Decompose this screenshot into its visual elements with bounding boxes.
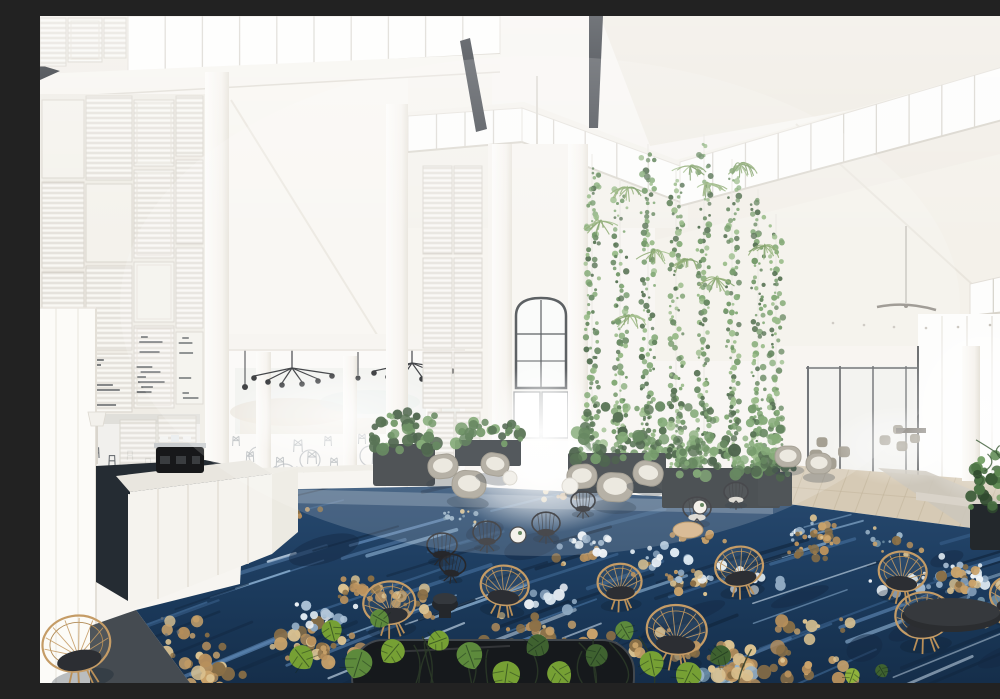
carpet-flower: [818, 522, 826, 530]
carpet-flower: [301, 601, 311, 611]
carpet-flower: [820, 536, 823, 539]
carpet-flower: [320, 653, 327, 660]
carpet-flower: [202, 642, 211, 651]
carpet-flower: [926, 584, 931, 589]
plant-bottom-right: [968, 504, 974, 510]
carpet-flower: [683, 555, 693, 565]
carpet-flower: [205, 633, 210, 638]
carpet-flower: [516, 624, 525, 633]
carpet-flower: [542, 625, 546, 629]
carpet-flower: [678, 569, 684, 575]
carpet-flower: [810, 544, 820, 554]
carpet-flower: [795, 532, 800, 537]
carpet-flower: [675, 576, 682, 583]
carpet-flower: [960, 585, 968, 593]
carpet-flower: [829, 541, 833, 545]
carpet-flower: [295, 602, 299, 606]
plant-bottom-right: [977, 456, 985, 464]
carpet-flower: [338, 595, 342, 599]
top-haze: [40, 16, 1000, 246]
carpet-flower: [892, 536, 901, 545]
carpet-flower: [971, 566, 980, 575]
carpet-flower: [810, 514, 817, 521]
carpet-flower: [667, 575, 673, 581]
carpet-flower: [742, 669, 754, 681]
carpet-flower: [839, 617, 843, 621]
carpet-flower: [804, 634, 815, 645]
carpet-flower: [288, 629, 301, 642]
drum-table-body: [439, 604, 451, 618]
carpet-flower: [822, 556, 828, 562]
plant-bottom-right: [965, 491, 976, 502]
carpet-flower: [813, 529, 817, 533]
carpet-flower: [757, 665, 771, 679]
carpet-flower: [955, 581, 962, 588]
carpet-flower: [310, 611, 318, 619]
carpet-flower: [506, 627, 510, 631]
carpet-flower: [340, 616, 347, 623]
carpet-flower: [368, 575, 375, 582]
oval-coffee-table-top: [904, 598, 1000, 626]
carpet-flower: [775, 626, 782, 633]
carpet-flower: [572, 599, 577, 604]
carpet-flower: [694, 570, 703, 579]
carpet-flower: [545, 627, 554, 636]
plant-bottom-right: [973, 470, 982, 479]
carpet-flower: [802, 534, 807, 539]
carpet-flower: [305, 621, 313, 629]
carpet-flower: [947, 587, 954, 594]
carpet-flower: [632, 642, 638, 648]
carpet-flower: [665, 573, 668, 576]
carpet-flower: [845, 618, 856, 629]
carpet-flower: [351, 587, 355, 591]
carpet-flower: [936, 581, 943, 588]
carpet-flower: [587, 628, 598, 639]
carpet-flower: [870, 537, 875, 542]
carpet-flower: [320, 608, 330, 618]
floor-speckle: [174, 654, 176, 656]
carpet-flower: [790, 533, 794, 537]
carpet-flower: [865, 530, 870, 535]
rattan-hoop-chair: [477, 563, 530, 621]
carpet-flower: [543, 592, 552, 601]
carpet-flower: [791, 538, 794, 541]
floor-speckle: [177, 632, 179, 634]
column-distant: [962, 346, 980, 481]
carpet-flower: [691, 569, 696, 574]
carpet-flower: [341, 576, 347, 582]
carpet-flower: [825, 535, 831, 541]
carpet-flower: [656, 554, 663, 561]
carpet-flower: [881, 550, 884, 553]
carpet-flower: [307, 636, 317, 646]
carpet-flower: [353, 604, 358, 609]
carpet-flower: [869, 579, 873, 583]
carpet-flower: [342, 590, 348, 596]
carpet-flower: [806, 620, 818, 632]
carpet-flower: [419, 604, 429, 614]
carpet-flower: [674, 570, 678, 574]
drum-table-top: [433, 593, 457, 605]
carpet-flower: [804, 661, 812, 669]
carpet-flower: [532, 601, 539, 608]
carpet-flower: [529, 620, 541, 632]
white-flower: [991, 470, 994, 473]
rattan-hoop-chair: [361, 579, 419, 641]
carpet-flower: [820, 546, 829, 555]
plant-bottom-right: [974, 485, 982, 493]
carpet-flower: [213, 652, 220, 659]
lobby-photo: Bright white hotel lobby atrium with vau…: [40, 16, 1000, 683]
carpet-flower: [178, 627, 190, 639]
downlight: [989, 324, 992, 327]
carpet-flower: [873, 526, 877, 530]
carpet-flower: [165, 639, 171, 645]
carpet-flower: [840, 628, 845, 633]
carpet-flower: [218, 643, 226, 651]
carpet-flower: [907, 542, 914, 549]
plant-bottom-right: [987, 501, 997, 511]
carpet-flower: [936, 571, 947, 582]
carpet-flower: [562, 604, 573, 615]
carpet-flower: [417, 589, 428, 600]
carpet-flower: [430, 615, 435, 620]
carpet-flower: [965, 570, 968, 573]
carpet-flower: [795, 549, 803, 557]
lobby-scene: [40, 16, 1000, 683]
carpet-flower: [775, 614, 788, 627]
carpet-flower: [776, 576, 785, 585]
carpet-flower: [832, 537, 840, 545]
carpet-flower: [646, 556, 649, 559]
carpet-flower: [919, 548, 925, 554]
carpet-flower: [784, 670, 791, 677]
carpet-flower: [191, 615, 203, 627]
carpet-flower: [190, 633, 196, 639]
carpet-flower: [323, 650, 327, 654]
carpet-flower: [938, 553, 945, 560]
floor-lamp-shade: [88, 412, 106, 426]
carpet-flower: [833, 656, 839, 662]
carpet-flower: [191, 666, 206, 681]
carpet-flower: [873, 542, 878, 547]
carpet-flower: [703, 592, 707, 596]
carpet-flower: [711, 668, 726, 683]
carpet-flower: [882, 541, 885, 544]
carpet-flower: [274, 637, 287, 650]
carpet-flower: [831, 523, 836, 528]
carpet-flower: [722, 539, 727, 544]
carpet-flower: [568, 621, 576, 629]
carpet-flower: [491, 623, 500, 632]
carpet-flower: [785, 650, 791, 656]
carpet-flower: [530, 590, 538, 598]
carpet-flower: [349, 633, 356, 640]
carpet-flower: [238, 671, 246, 679]
carpet-flower: [331, 643, 337, 649]
carpet-flower: [561, 563, 564, 566]
rattan-hoop-chair: [596, 562, 643, 613]
floor-speckle: [161, 617, 164, 620]
carpet-flower: [811, 554, 820, 563]
carpet-flower: [606, 631, 616, 641]
carpet-flower: [810, 522, 813, 525]
carpet-flower: [943, 563, 949, 569]
carpet-flower: [969, 579, 976, 586]
carpet-flower: [670, 548, 679, 557]
floor-speckle: [165, 633, 168, 636]
carpet-flower: [206, 674, 214, 682]
carpet-flower: [300, 613, 307, 620]
carpet-flower: [780, 658, 785, 663]
carpet-flower: [674, 587, 683, 596]
carpet-flower: [179, 657, 191, 669]
carpet-flower: [951, 567, 962, 578]
carpet-flower: [690, 580, 696, 586]
carpet-flower: [701, 537, 704, 540]
carpet-flower: [963, 564, 969, 570]
carpet-flower: [638, 559, 649, 570]
carpet-flower: [726, 642, 731, 647]
carpet-flower: [888, 540, 891, 543]
carpet-flower: [794, 542, 799, 547]
carpet-flower: [708, 576, 714, 582]
carpet-flower: [221, 667, 235, 681]
carpet-flower: [787, 550, 791, 554]
carpet-flower: [292, 622, 300, 630]
